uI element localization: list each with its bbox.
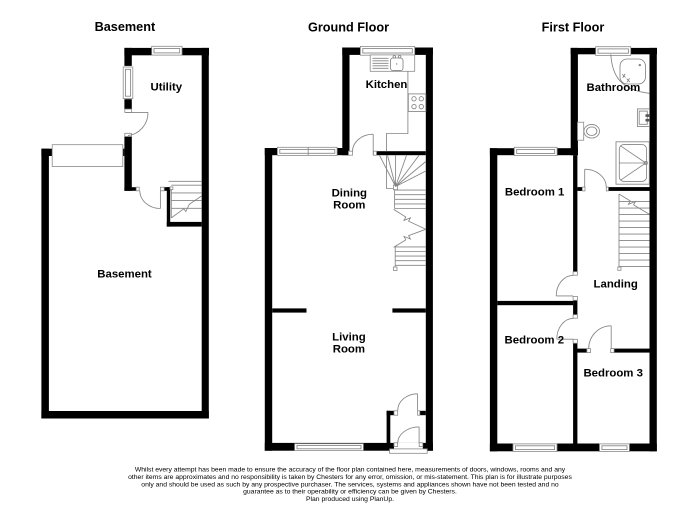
svg-text:guarantee as to their operabil: guarantee as to their operability or eff… bbox=[243, 489, 457, 496]
svg-text:only and should be used as suc: only and should be used as such by any p… bbox=[141, 481, 559, 488]
svg-text:Living: Living bbox=[332, 332, 366, 344]
svg-text:Room: Room bbox=[333, 344, 365, 356]
svg-text:Utility: Utility bbox=[150, 81, 182, 93]
svg-text:Bedroom 1: Bedroom 1 bbox=[505, 187, 565, 199]
svg-text:Bathroom: Bathroom bbox=[587, 82, 641, 94]
svg-text:Dining: Dining bbox=[332, 188, 367, 200]
svg-text:Whilst every attempt has been: Whilst every attempt has been made to en… bbox=[135, 467, 566, 474]
svg-text:Kitchen: Kitchen bbox=[366, 79, 408, 91]
svg-text:Bedroom 3: Bedroom 3 bbox=[583, 367, 643, 379]
svg-text:Ground Floor: Ground Floor bbox=[308, 20, 389, 34]
svg-text:Basement: Basement bbox=[97, 268, 152, 280]
svg-text:Basement: Basement bbox=[95, 20, 156, 34]
svg-text:other items are approximates a: other items are approximates and no resp… bbox=[128, 474, 572, 481]
svg-text:Landing: Landing bbox=[594, 278, 638, 290]
svg-text:First Floor: First Floor bbox=[542, 20, 605, 34]
svg-text:Plan produced using PlanUp.: Plan produced using PlanUp. bbox=[306, 496, 394, 503]
svg-text:Room: Room bbox=[333, 200, 365, 212]
svg-text:Bedroom 2: Bedroom 2 bbox=[505, 335, 565, 347]
